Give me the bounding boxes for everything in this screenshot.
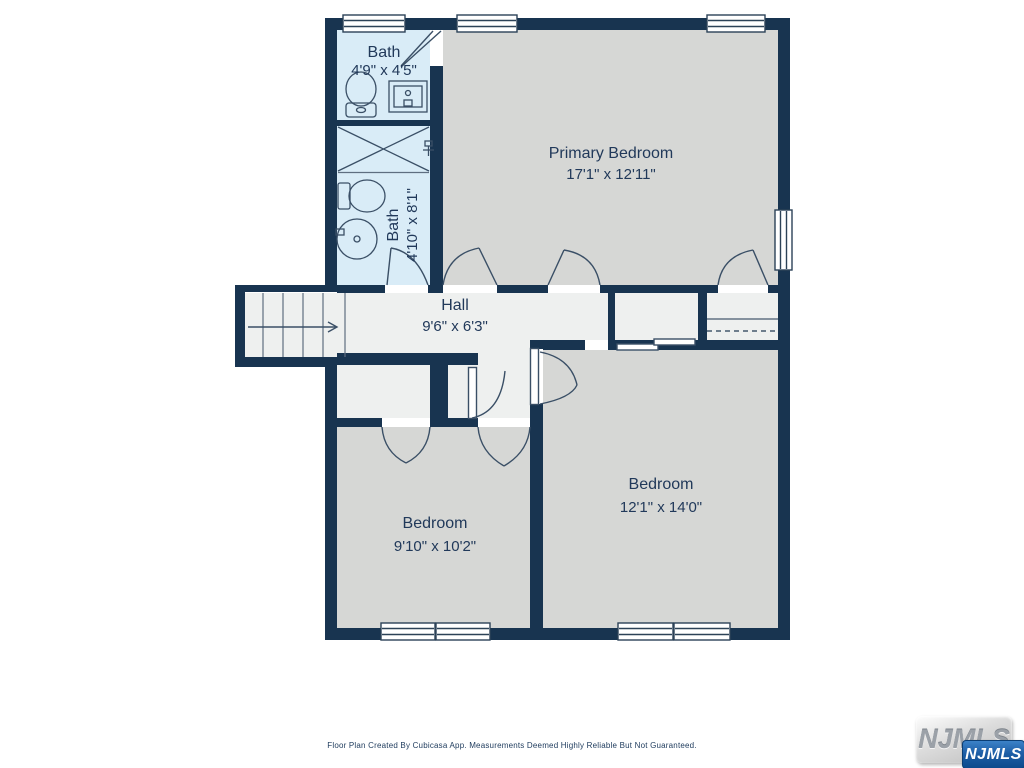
window-right [775,210,792,270]
bath-side-label: Bath [385,209,402,242]
njmls-logo-badge: NJMLS [962,740,1024,768]
wall-closet-bottom-1 [337,418,382,427]
wall-closet-bottom-2 [430,418,478,427]
bedroom-left-label: Bedroom [403,515,468,532]
window-top-3 [707,15,765,32]
primary-bedroom-dims: 17'1" x 12'11" [566,166,656,183]
wall-hall-top-2 [428,285,443,293]
wall-stair-top [235,285,337,292]
wall-hall-top-4 [600,285,718,293]
wall-bedroom-divider [530,404,543,628]
bedroom-left-dims: 9'10" x 10'2" [394,538,476,555]
wall-outer-left-lower [325,357,337,640]
bedroom-right-dims: 12'1" x 14'0" [620,499,702,516]
closet-a-floor [615,293,698,340]
stair-floor-strip [245,353,345,357]
window-bottom-left-double [381,623,490,640]
wall-closet-left-right [430,363,448,427]
wall-hall-right [608,293,615,340]
disclaimer-text: Floor Plan Created By Cubicasa App. Meas… [0,741,1024,750]
bath-top-dims: 4'9" x 4'5" [351,62,417,79]
wall-bath-right [430,66,443,285]
closet-b-floor [707,293,778,340]
bedroom-right-label: Bedroom [629,476,694,493]
bath-side-dims: 4'10" x 8'1" [404,188,421,262]
window-top-1 [343,15,405,32]
wall-closet-ab-divider [698,293,707,340]
floor-plan-drawing: Bath 4'9" x 4'5" Bath 4'10" x 8'1" Prima… [0,0,1024,768]
njmls-badge-text: NJMLS [965,746,1022,764]
closet-left-floor [337,365,430,418]
hall-floor [245,293,535,353]
wall-hall-bottom [337,353,478,365]
wall-stair-bottom [235,357,337,367]
primary-bedroom-label: Primary Bedroom [549,145,673,162]
bath-top-label: Bath [368,44,401,61]
wall-bedroom-right-top-1 [543,340,585,350]
wall-hall-top-5 [768,285,778,293]
window-bottom-right-double [618,623,730,640]
hall-dims: 9'6" x 6'3" [422,318,488,335]
wall-outer-right [778,18,790,640]
wall-bath-divider [337,120,430,126]
hall-floor-east [535,293,608,340]
floor-plan-page: Bath 4'9" x 4'5" Bath 4'10" x 8'1" Prima… [0,0,1024,768]
window-top-2 [457,15,517,32]
wall-outer-left-upper [325,18,337,292]
wall-stair-left [235,285,245,367]
passage-floor [478,353,530,418]
hall-label: Hall [441,297,469,314]
wall-bedroom-divider-top [530,340,543,349]
wall-hall-top-1 [337,285,385,293]
wall-hall-top-3 [497,285,548,293]
